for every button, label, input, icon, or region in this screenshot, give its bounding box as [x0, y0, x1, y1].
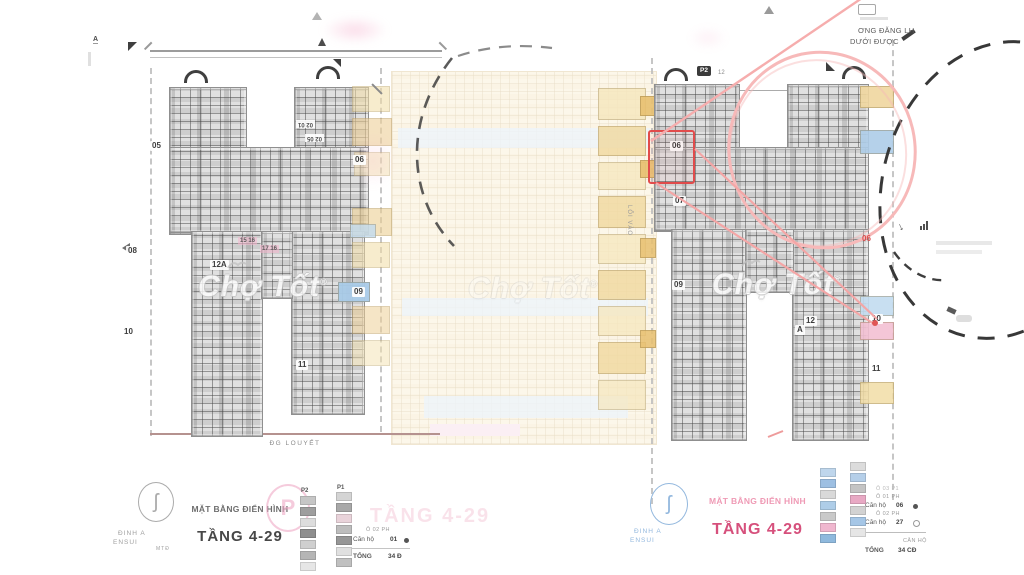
plan-top-border-2: [150, 57, 442, 58]
center-bar: [170, 148, 368, 232]
corner-wedge-icon: [333, 59, 341, 67]
unit-number-label: 07: [673, 196, 686, 206]
corner-marker-a: A: [93, 36, 98, 44]
highlight-unit: [640, 96, 656, 116]
legend-swatch: [820, 479, 836, 488]
legend-swatch: [336, 525, 352, 534]
legend-swatch-column-p2: [300, 496, 316, 571]
legend-swatch: [336, 558, 352, 567]
pink-strip-label: 15 16: [238, 237, 257, 245]
legend-swatch: [850, 462, 866, 471]
highlight-unit: [352, 86, 390, 112]
legend-divider: [352, 548, 410, 549]
unit-number-label: 10: [870, 314, 883, 324]
legend-swatch: [820, 501, 836, 510]
highlight-unit: [598, 380, 646, 410]
legend-dot-filled: [404, 538, 409, 543]
unit-number-label: 05: [150, 141, 163, 151]
highlight-unit: [598, 88, 646, 120]
legend-swatch: [850, 484, 866, 493]
pink-smudge: [688, 26, 728, 50]
legend-row-value: 27: [896, 519, 903, 526]
badge-sub-label: 12: [718, 70, 725, 76]
brand-line1: ĐINH A: [634, 528, 662, 535]
right-wing-top: [788, 85, 868, 231]
stair-core-icon: [184, 70, 208, 83]
highlight-unit: [640, 238, 656, 258]
highlight-unit: [350, 224, 376, 238]
border-tick: [144, 42, 152, 50]
brand-line2: ENSUI: [113, 539, 138, 546]
dashed-ellipse-right: [849, 16, 1024, 364]
legend-col2-header: P1: [337, 485, 344, 491]
red-circle-annotation-echo: [715, 46, 921, 260]
brand-line3: MTĐ: [156, 546, 170, 552]
cursor-mark: [946, 306, 956, 314]
down-arrow-icon: ↓: [896, 220, 906, 233]
unit-number-label: 12: [804, 316, 817, 326]
red-callout-point: [872, 320, 878, 326]
legend-caption: Ô 01 PH: [876, 494, 900, 500]
faded-blue-band: [424, 396, 628, 418]
pink-smudge: [322, 16, 388, 44]
highlight-unit: [352, 242, 390, 268]
faded-pink-band: [430, 424, 520, 436]
legend-caption: Ô 03 P1: [876, 486, 899, 492]
watermark-middle: Chợ Tốt®: [468, 272, 598, 306]
highlight-unit: [598, 234, 646, 264]
unit-number-label: A: [795, 325, 805, 335]
pink-smudge: [350, 134, 396, 188]
legend-note: CĂN HỘ: [903, 538, 927, 544]
boundary-dashed-line: [892, 40, 894, 500]
left-title-sub: MẶT BẰNG ĐIỂN HÌNH: [185, 504, 295, 514]
red-rect-unit06: [649, 131, 694, 183]
legend-swatch: [300, 518, 316, 527]
street-label: ĐG LOUYẾT: [210, 440, 380, 447]
legend-row-value: 01: [390, 536, 397, 543]
legend-swatch: [336, 492, 352, 501]
legend-swatch: [820, 512, 836, 521]
legend-swatch: [300, 551, 316, 560]
watermark-bird-icon: [740, 256, 762, 268]
highlight-unit: [598, 126, 646, 156]
legend-swatch: [336, 536, 352, 545]
legend-swatch-column-1: [820, 468, 836, 543]
faded-pink-logo: P: [266, 484, 310, 532]
dashed-arc-middle-top: [458, 46, 552, 56]
highlight-unit: [860, 382, 894, 404]
hatch-mark: [371, 83, 382, 94]
legend-total-label: TỔNG: [353, 553, 372, 560]
left-arrow-icon: [122, 243, 130, 253]
red-callout-line: [651, 0, 868, 141]
watermark-right: Chợ Tốt®: [712, 268, 842, 302]
legend-total-label: TỔNG: [865, 547, 884, 554]
right-leg: [292, 232, 364, 414]
legend-swatch: [820, 490, 836, 499]
border-tick: [439, 42, 447, 50]
legend-row-value: 06: [896, 502, 903, 509]
legend-dot-open: [913, 520, 920, 527]
dashed-arc-small: [894, 252, 948, 280]
right-leg: [793, 230, 868, 440]
brand-line2: ENSUI: [630, 537, 655, 544]
legend-swatch: [300, 496, 316, 505]
left-leg: [672, 230, 746, 440]
highlight-unit: [860, 130, 894, 154]
project-logo-left: ʃ: [138, 482, 174, 522]
corner-wedge-icon: [826, 62, 835, 71]
faded-pink-logo-glyph: P: [281, 495, 296, 521]
plan-top-border: [716, 90, 864, 91]
legend-caption: Ô 02 PH: [876, 511, 900, 517]
faded-blue-band: [398, 128, 650, 148]
legend-swatch: [336, 547, 352, 556]
legend-row-label: Căn hộ: [865, 502, 886, 509]
legend-swatch: [850, 517, 866, 526]
red-unit-label: 06: [862, 234, 871, 243]
red-dash-small: [768, 431, 783, 437]
left-wing-top: [170, 88, 246, 234]
north-arrow-icon: [318, 38, 326, 46]
legend-row-label: Căn hộ: [865, 519, 886, 526]
highlight-unit: [598, 342, 646, 374]
legend-swatch: [300, 562, 316, 571]
unit-label-flipped: 02 01: [296, 120, 315, 128]
left-title-main: TẦNG 4-29: [185, 528, 295, 545]
stair-core-icon: [316, 66, 340, 79]
highlight-unit: [352, 306, 390, 334]
stair-core-icon: [842, 66, 866, 79]
faded-title: TẦNG 4-29: [345, 505, 515, 528]
unit-number-label: 09: [672, 280, 685, 290]
logo-glyph: ʃ: [154, 491, 158, 514]
legend-caption: Ô 02 PH: [366, 527, 390, 533]
faint-text-bar: [936, 250, 982, 254]
note-icon: [858, 4, 876, 15]
logo-glyph: ʃ: [667, 493, 671, 516]
highlight-unit: [598, 196, 646, 228]
note-faint-line: [860, 17, 888, 20]
highlight-unit: [338, 282, 370, 302]
unit-number-label: 10: [122, 327, 135, 337]
highlight-unit: [860, 296, 894, 316]
legend-dot-filled: [913, 504, 918, 509]
highlight-unit: [860, 86, 894, 108]
legend-swatch: [820, 523, 836, 532]
highlight-unit: [598, 162, 646, 190]
compass-icon: [312, 12, 322, 20]
compass-icon-right: [764, 6, 774, 14]
left-wing-top: [655, 85, 739, 231]
stair-core-icon: [664, 68, 688, 81]
legend-swatch-column-p1: [336, 492, 352, 567]
highlight-unit: [352, 208, 392, 236]
floorplan-collage: 0506081012A0911 02 01 02 05 15 16 17 16 …: [0, 0, 1024, 575]
legend-swatch: [820, 468, 836, 477]
unit-number-label: 09: [352, 287, 365, 297]
highlight-unit: [352, 340, 390, 366]
right-title-main: TẦNG 4-29: [700, 521, 815, 539]
unit-number-label: 11: [870, 364, 882, 374]
handwritten-note-line2: DƯỚI ĐƯỢC: [850, 37, 899, 46]
highlight-unit: [640, 330, 656, 348]
pink-strip-label: 17 16: [260, 245, 279, 253]
legend-swatch: [300, 540, 316, 549]
dashed-arc-middle: [417, 58, 454, 246]
watermark-bird-icon: [226, 258, 248, 270]
legend-swatch: [300, 529, 316, 538]
legend-swatch: [850, 528, 866, 537]
highlight-unit: [703, 326, 739, 342]
tower-badge-p2: P2: [697, 66, 711, 76]
plan-bottom-border: [150, 433, 440, 435]
highlight-unit: [598, 306, 646, 336]
legend-swatch: [336, 514, 352, 523]
brand-line1: ĐINH A: [118, 530, 146, 537]
corner-wedge-icon: [128, 42, 137, 51]
unit-number-label: 06: [670, 141, 683, 151]
red-callout-line: [656, 183, 874, 324]
boundary-dashed-line: [380, 68, 382, 432]
highlight-unit: [860, 322, 894, 340]
gray-blob: [956, 315, 972, 322]
unit-label-flipped: 02 05: [305, 134, 324, 142]
legend-swatch: [820, 534, 836, 543]
handwritten-note-line1: ƠNG ĐĂNG LH: [858, 26, 914, 35]
highlight-unit: [640, 160, 656, 178]
legend-total-value: 34 Đ: [388, 553, 402, 560]
legend-total-value: 34 CĐ: [898, 547, 916, 554]
watermark-left: Chợ Tốt®: [198, 270, 328, 304]
project-logo-right: ʃ: [650, 483, 688, 525]
boundary-dashed-line: [651, 58, 653, 504]
legend-col1-header: P2: [301, 488, 308, 494]
legend-swatch: [300, 507, 316, 516]
plan-top-border: [150, 50, 442, 52]
center-bar: [655, 148, 868, 230]
right-title-sub: MẶT BẰNG ĐIỂN HÌNH: [700, 496, 815, 506]
legend-divider: [862, 532, 926, 533]
legend-swatch: [850, 506, 866, 515]
legend-swatch: [850, 495, 866, 504]
edge-note-faint: [88, 52, 91, 66]
legend-swatch: [336, 503, 352, 512]
boundary-dashed-line: [150, 68, 152, 436]
faded-building-mass: [392, 72, 656, 444]
highlight-unit: [598, 270, 646, 300]
entrance-label: LỐI VÀO: [626, 205, 632, 236]
legend-row-label: Căn hộ: [353, 536, 374, 543]
faint-text-bar: [936, 241, 992, 245]
unit-number-label: 08: [126, 246, 139, 256]
legend-swatch-column-2: [850, 462, 866, 537]
legend-swatch: [850, 473, 866, 482]
unit-number-label: 11: [296, 360, 308, 370]
